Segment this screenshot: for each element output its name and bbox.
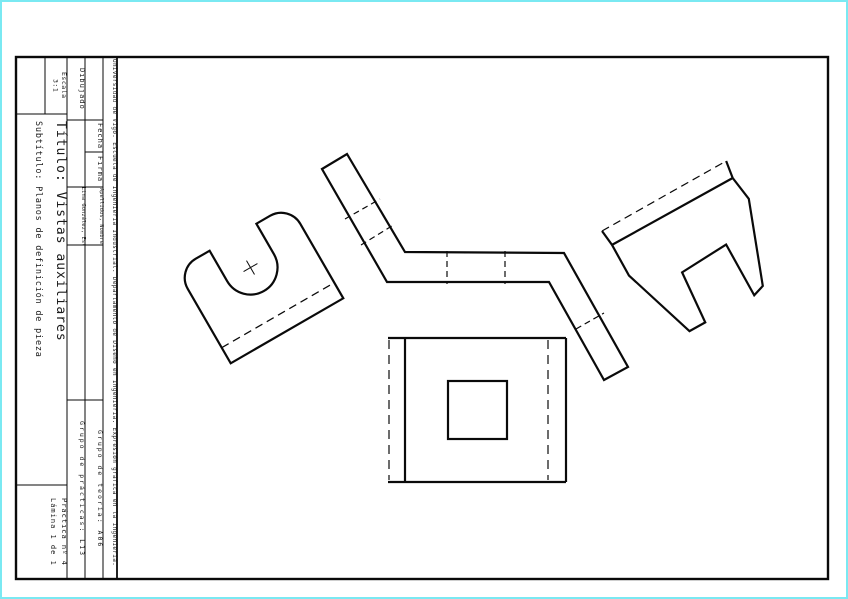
center-mark (240, 257, 262, 279)
escala-label: Escala (61, 57, 68, 114)
view-forked-bracket (602, 160, 791, 344)
practica-box: Práctica nº 4 Lámina 1 de 1 (16, 485, 76, 579)
subtitulo: Subtítulo: Planos de definición de pieza (17, 114, 49, 492)
dibujado-label: Dibujado (67, 57, 89, 120)
view-u-slot-plate (177, 205, 344, 364)
drawing-sheet: Universidad de Vigo. Escuela de Ingenier… (0, 0, 848, 599)
hidden-edge-line (602, 161, 728, 231)
view-bent-bar (322, 154, 628, 380)
dashed-boundaries (389, 340, 548, 480)
practica-number: Práctica nº 4 (60, 485, 67, 579)
escala-value: 3:1 (52, 57, 59, 114)
fecha-label: Fecha (85, 120, 107, 152)
sheet-linework (2, 2, 848, 599)
lamina-number: Lámina 1 de 1 (49, 485, 56, 579)
firma-label: Firma (85, 152, 107, 187)
square-hole (448, 381, 507, 439)
sheet-frame (16, 57, 828, 579)
escala-box: Escala 3:1 (45, 57, 70, 114)
view-plan-rectangle (388, 338, 566, 482)
